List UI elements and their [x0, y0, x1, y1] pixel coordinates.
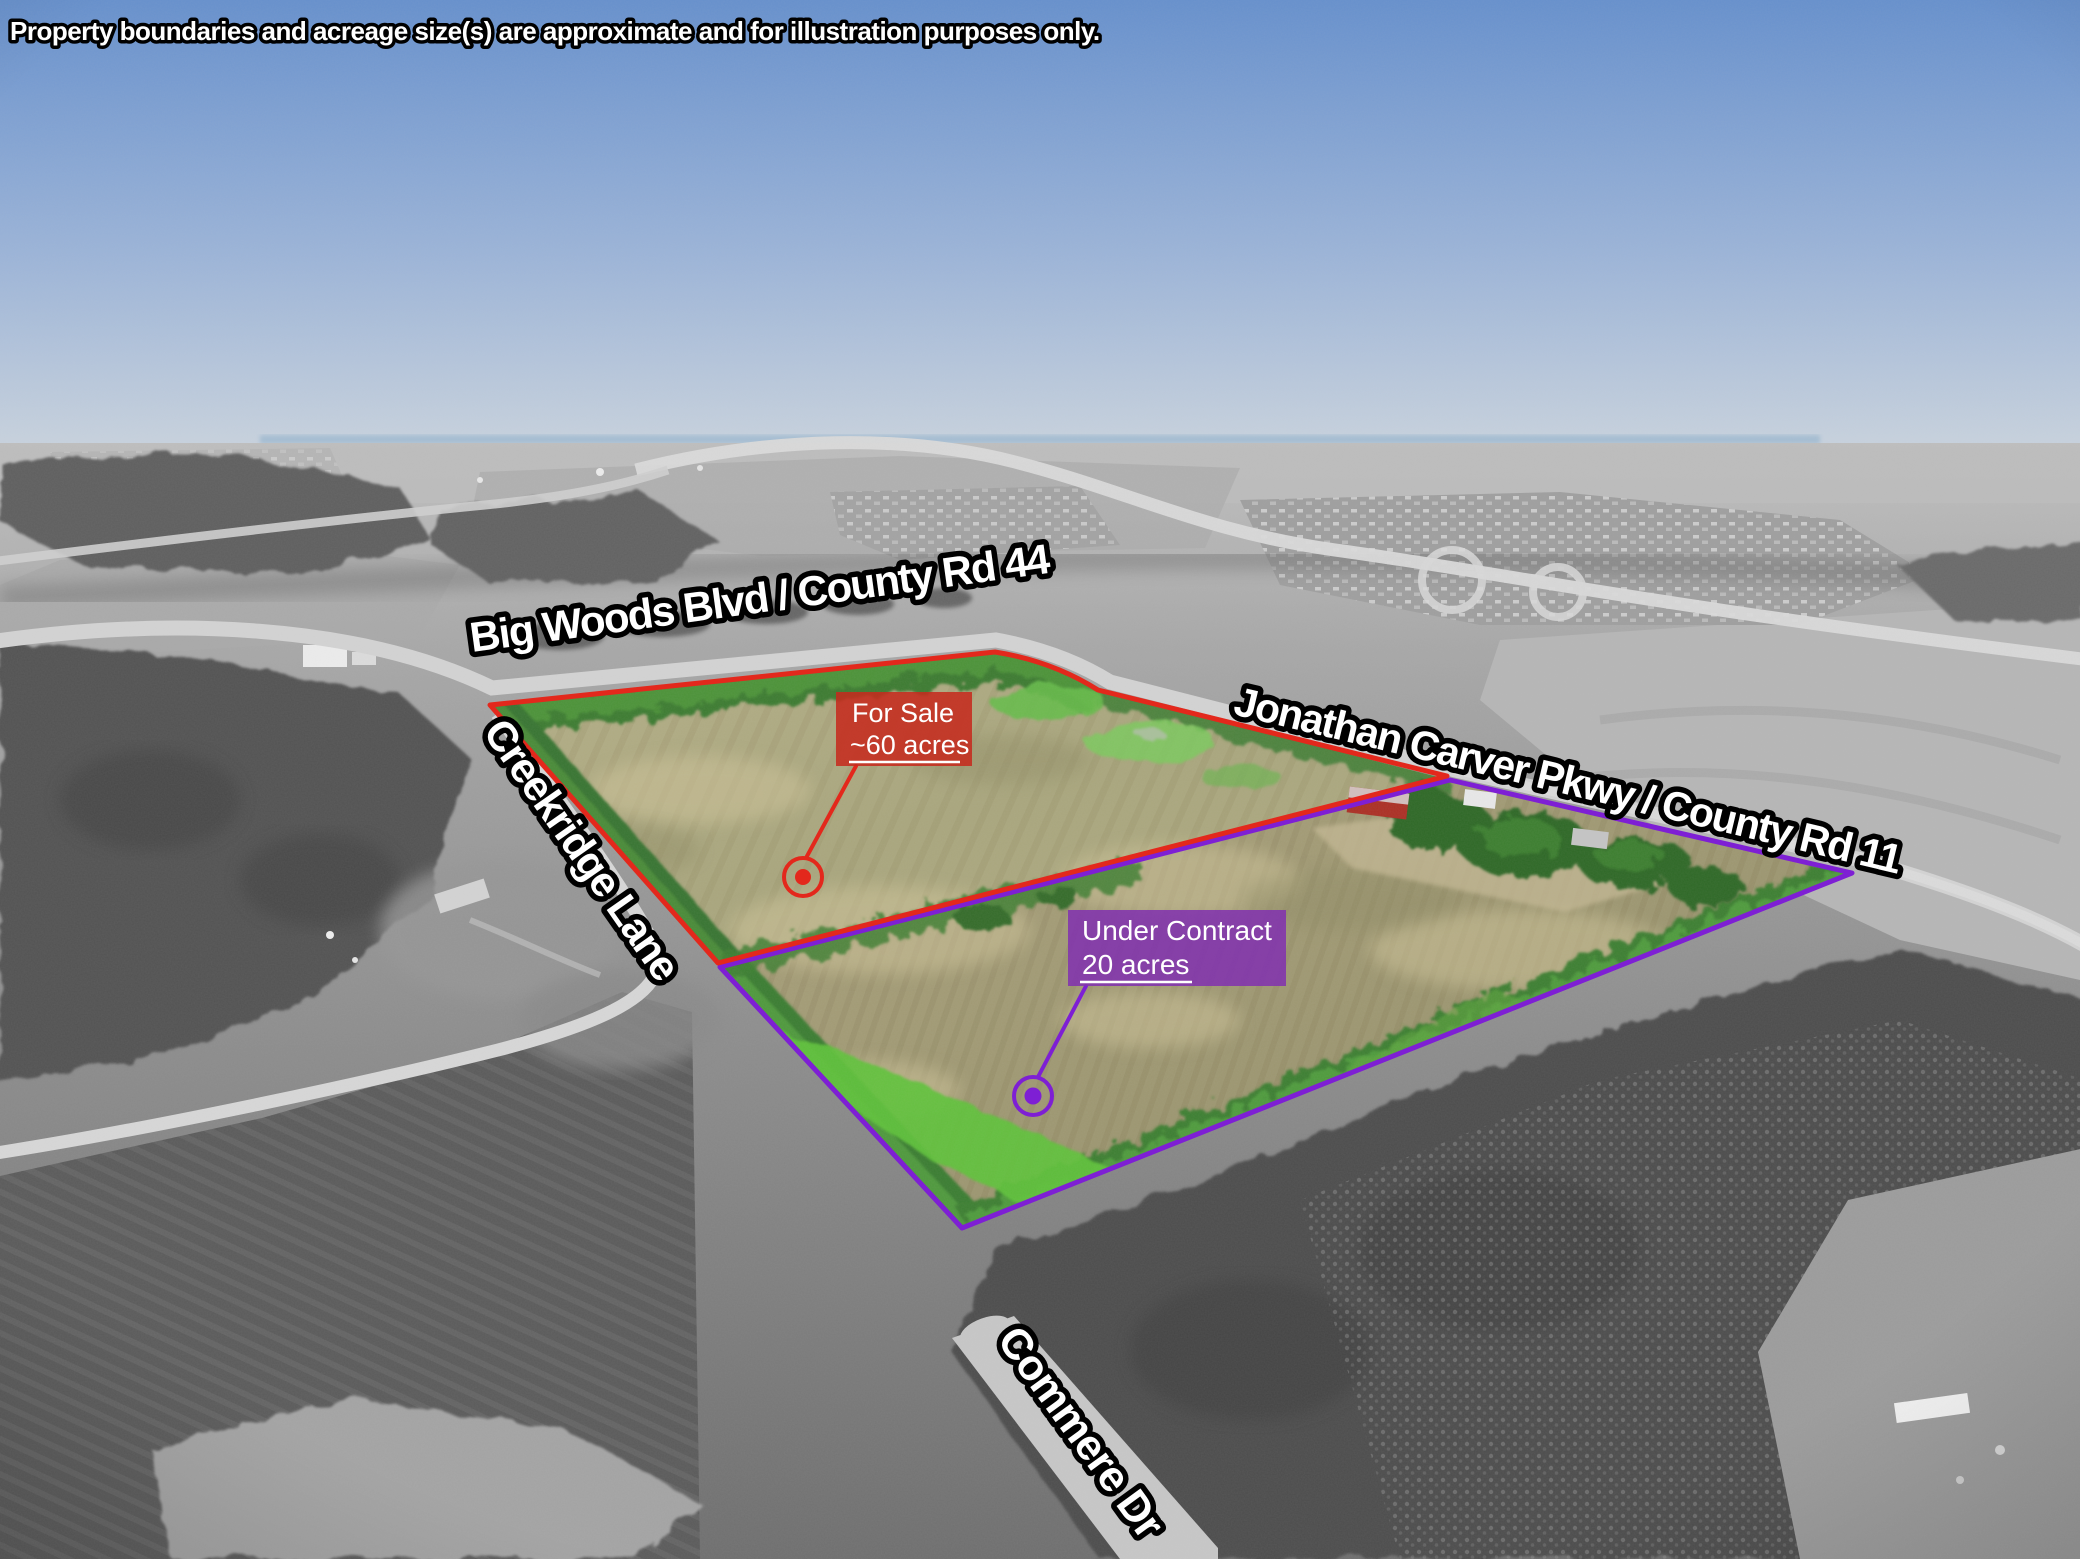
under-contract-status-text: Under Contract — [1082, 915, 1272, 946]
vignette — [0, 0, 2080, 1559]
for-sale-acreage-text: ~60 acres — [850, 730, 969, 760]
for-sale-marker-dot — [795, 869, 811, 885]
under-contract-acreage-text: 20 acres — [1082, 949, 1189, 980]
for-sale-status-text: For Sale — [852, 698, 954, 728]
disclaimer-text: Property boundaries and acreage size(s) … — [10, 16, 1100, 46]
aerial-property-map: For Sale ~60 acres Under Contract 20 acr… — [0, 0, 2080, 1559]
for-sale-label: For Sale ~60 acres — [836, 692, 972, 766]
under-contract-label: Under Contract 20 acres — [1068, 910, 1286, 986]
aerial-photo: For Sale ~60 acres Under Contract 20 acr… — [0, 0, 2080, 1559]
under-contract-marker-dot — [1025, 1088, 1042, 1105]
